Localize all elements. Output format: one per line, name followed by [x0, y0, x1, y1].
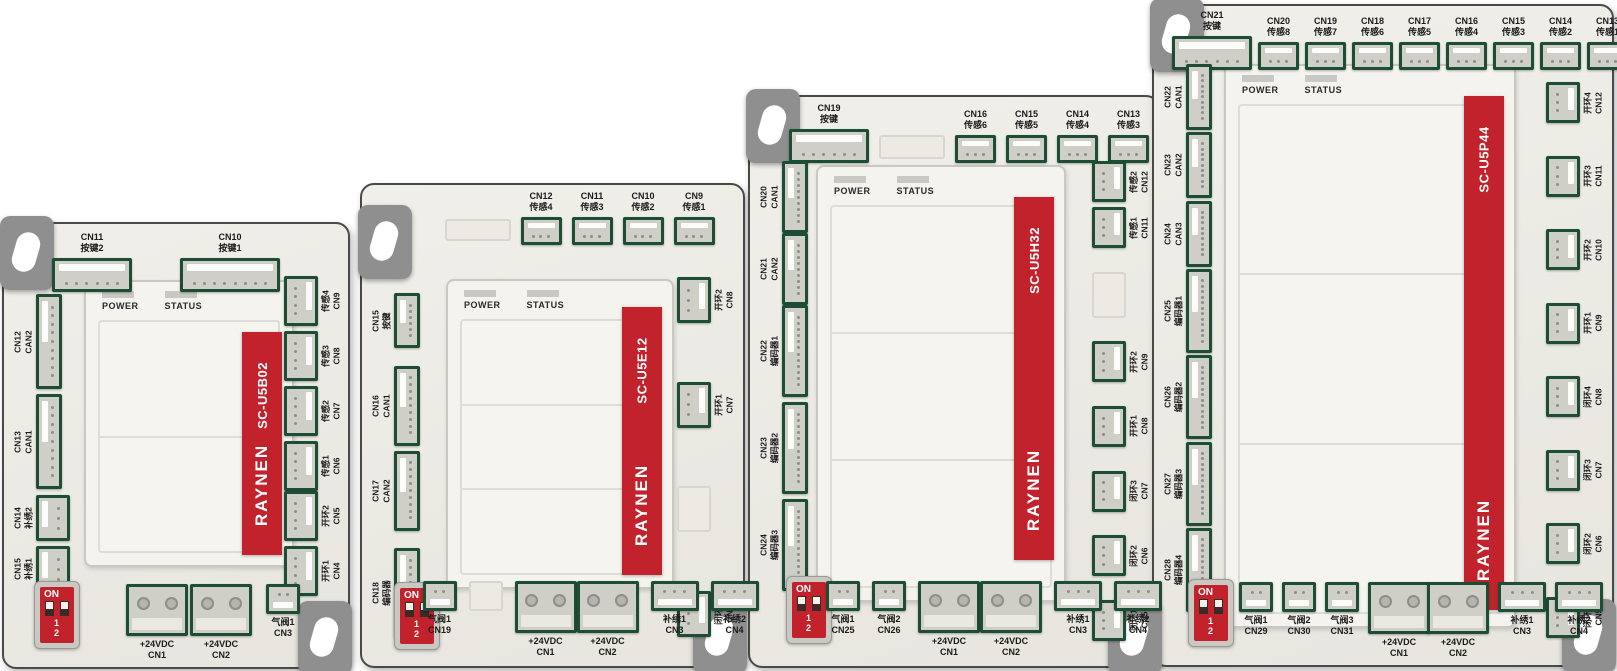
pin-dots	[797, 170, 800, 224]
pin	[1201, 399, 1204, 402]
pin-dots	[1201, 451, 1204, 517]
pin	[673, 590, 676, 593]
pin	[1033, 153, 1036, 156]
dip-knob	[1200, 600, 1207, 607]
pin	[1251, 591, 1254, 594]
pin	[409, 404, 412, 407]
top-connector-CN13: CN13传感1	[1587, 16, 1617, 70]
pin-dots	[964, 153, 987, 156]
screw	[229, 597, 242, 610]
pin	[1201, 323, 1204, 326]
pin	[409, 559, 412, 562]
connector-label-CN20: CN20传感8	[1267, 16, 1290, 39]
pin	[797, 383, 800, 386]
pin	[1201, 382, 1204, 385]
bottom-connector-CN1: +24VDCCN1	[1368, 582, 1430, 660]
pin	[1556, 183, 1559, 186]
label-line: 开环2	[713, 289, 724, 311]
connector-CN7	[677, 382, 711, 428]
blank-slot	[879, 135, 945, 159]
pin	[685, 235, 688, 238]
connector-label-CN15: CN15传感5	[1015, 109, 1038, 132]
pin	[797, 540, 800, 543]
label-line: CN15	[370, 310, 381, 332]
pin	[1201, 307, 1204, 310]
pin	[294, 460, 297, 463]
pin	[51, 466, 54, 469]
label-line: 传感5	[1015, 120, 1038, 131]
pin-dots	[530, 235, 553, 238]
dip-knob	[61, 602, 68, 609]
connector-group: CN22编码器1CN23编码器2CN24编码器3	[758, 305, 808, 591]
pin	[409, 304, 412, 307]
rotated-label: 闭环2CN6	[1128, 545, 1149, 567]
label-line: 补绣2	[723, 614, 746, 625]
connector-label-CN8: 开环1CN8	[1128, 406, 1150, 447]
pin	[797, 565, 800, 568]
pin	[797, 468, 800, 471]
connector-CN16	[955, 135, 996, 163]
pin-dots	[835, 590, 851, 593]
label-line: 传感3	[1117, 120, 1140, 131]
connector-label-CN1: +24VDCCN1	[932, 636, 966, 659]
pin	[1201, 185, 1204, 188]
model-label: SC-U5H32	[1027, 227, 1042, 294]
connector-slot	[1568, 309, 1574, 331]
top-connector-CN11: CN11按键2	[52, 232, 132, 292]
connector-CN13	[1587, 42, 1617, 70]
pin-dots	[1564, 591, 1594, 594]
connector-label-CN22: CN22CAN1	[1162, 64, 1184, 130]
top-connector-CN15: CN15传感5	[1006, 109, 1047, 163]
connector-slot	[1192, 276, 1198, 312]
bottom-connector-row: +24VDCCN1+24VDCCN2气阀1CN3	[94, 584, 332, 662]
label-line: CN19	[817, 103, 840, 114]
label-line: 气阀3	[1330, 615, 1353, 626]
label-line: CN9	[1593, 312, 1604, 334]
pin	[1285, 60, 1288, 63]
pin	[797, 474, 800, 477]
pin	[1556, 395, 1559, 398]
label-line: CN3	[1510, 626, 1533, 637]
label-line: CN2	[590, 647, 624, 658]
pin	[1102, 188, 1105, 191]
connector-label-CN9: 传感4CN9	[320, 276, 342, 326]
pin-dots	[660, 590, 690, 593]
power-led-block: POWER	[1242, 75, 1279, 95]
connector-slot	[1453, 48, 1480, 53]
connector-label-CN23: CN23编码器2	[758, 402, 780, 494]
label-line: 开环4	[1582, 92, 1593, 114]
connector-group: 闭环3CN7	[1546, 450, 1604, 491]
screw	[553, 594, 566, 607]
top-connector-CN15: CN15传感3	[1493, 16, 1534, 70]
connector-slot	[400, 458, 406, 492]
rotated-label: 开环1CN7	[713, 394, 734, 416]
mount-tab	[358, 205, 412, 279]
pin-dots	[1201, 210, 1204, 258]
connector-CN6	[1092, 535, 1126, 576]
connector-CN3	[1498, 582, 1546, 612]
pin	[1201, 544, 1204, 547]
pin	[812, 153, 815, 156]
connector-CN7	[1546, 450, 1580, 491]
label-line: CN2	[994, 647, 1028, 658]
rotated-label: 开环1CN9	[1582, 312, 1603, 334]
connector-label-CN15: CN15按键	[370, 293, 392, 348]
connector-CN13	[36, 394, 62, 489]
label-line: 编码器1	[769, 336, 780, 366]
label-line: CN31	[1330, 626, 1353, 637]
pin	[1201, 377, 1204, 380]
rotated-label: 闭环2CN6	[1582, 533, 1603, 555]
label-line: CN7	[1139, 480, 1150, 502]
connector-CN27	[1186, 442, 1212, 526]
pin	[1201, 371, 1204, 374]
connector-slot	[1332, 600, 1352, 606]
pin	[116, 282, 119, 285]
right-connector-CN6: 闭环2CN6	[1092, 535, 1150, 576]
label-line: 开环1	[1128, 416, 1139, 438]
label-line: CAN1	[23, 430, 34, 453]
terminal-screws	[921, 594, 977, 607]
pin	[663, 590, 666, 593]
connector-CN18	[1352, 42, 1393, 70]
pin-dots	[1102, 349, 1105, 374]
screw	[991, 594, 1004, 607]
connector-label-CN9: CN9传感1	[682, 191, 705, 214]
dip-knob	[813, 597, 820, 604]
pin	[723, 590, 726, 593]
pin	[1568, 591, 1571, 594]
label-line: 传感5	[1408, 27, 1431, 38]
pin	[294, 304, 297, 307]
connector-CN12	[36, 294, 62, 389]
left-connector-column: CN20CAN1CN21CAN2CN22编码器1CN23编码器2CN24编码器3	[758, 161, 808, 589]
label-line: 闭环2	[1582, 533, 1593, 555]
pin-dots	[1314, 60, 1337, 63]
pin	[838, 590, 841, 593]
dip-on-label: ON	[1194, 585, 1228, 598]
connector-slot	[1568, 235, 1574, 257]
pin	[294, 574, 297, 577]
pin	[409, 431, 412, 434]
pin	[1201, 164, 1204, 167]
label-line: 传感1	[1596, 27, 1617, 38]
label-line: 传感1	[320, 455, 331, 477]
connector-slot	[528, 223, 555, 228]
pin	[1102, 218, 1105, 221]
pin	[853, 153, 856, 156]
rotated-label: CN13CAN1	[12, 430, 33, 453]
pin	[294, 469, 297, 472]
label-line: CN30	[1287, 626, 1310, 637]
rotated-label: 开环2CN10	[1582, 239, 1603, 261]
bottom-connector-CN29: 气阀1CN29	[1239, 582, 1273, 638]
status-led	[165, 291, 197, 298]
rotated-label: 传感4CN9	[320, 290, 341, 312]
pin	[1185, 60, 1188, 63]
pin	[1102, 417, 1105, 420]
pin-dots	[1556, 237, 1559, 262]
pin	[1102, 180, 1105, 183]
label-line: CN4	[723, 625, 746, 636]
pin-dots	[294, 449, 297, 483]
label-line: 开环3	[1582, 165, 1593, 187]
connector-CN15	[394, 293, 420, 348]
label-line: CN11	[580, 191, 603, 202]
label-line: CN22	[1162, 85, 1173, 108]
connector-slot	[1061, 599, 1095, 605]
model-strip: SC-U5H32RAYNEN	[1014, 197, 1054, 560]
pin	[1102, 481, 1105, 484]
left-connector-CN20: CN20CAN1	[758, 161, 808, 233]
label-line: CN27	[1162, 469, 1173, 499]
connector-CN12	[1546, 82, 1580, 123]
status-led	[897, 176, 929, 183]
pin-dots	[1556, 164, 1559, 189]
dip-numbers: 1 2	[792, 613, 826, 633]
rotated-label: CN24编码器3	[758, 530, 779, 560]
pin	[1201, 211, 1204, 214]
dip-lever	[1214, 599, 1223, 614]
label-line: CN9	[682, 191, 705, 202]
label-line: CN28	[1162, 555, 1173, 585]
left-connector-CN14: CN14补绣2	[12, 495, 70, 541]
pin	[974, 153, 977, 156]
label-line: CN1	[528, 647, 562, 658]
connector-CN8	[284, 331, 318, 381]
left-connector-CN27: CN27编码器3	[1162, 442, 1212, 526]
label-line: CN9	[331, 290, 342, 312]
model-zone: SC-U5H32	[1014, 205, 1054, 315]
connector-CN19	[789, 129, 869, 163]
pin	[797, 443, 800, 446]
label-line: +24VDC	[1382, 637, 1416, 648]
connector-slot	[1568, 382, 1574, 404]
pin	[1201, 290, 1204, 293]
connector-label-CN10: CN10按键1	[218, 232, 241, 255]
connector-group: 开环2CN5开环1CN4	[284, 491, 342, 596]
label-line: CN20	[1267, 16, 1290, 27]
connector-slot	[788, 506, 794, 546]
pin	[802, 153, 805, 156]
label-line: 补绣2	[1567, 615, 1590, 626]
label-line: CN3	[663, 625, 686, 636]
pin	[1418, 60, 1421, 63]
pin	[797, 280, 800, 283]
pin	[1102, 360, 1105, 363]
model-label: SC-U5E12	[635, 337, 650, 403]
brand-zone: RAYNEN	[1014, 430, 1054, 550]
label-line: CN24	[1162, 222, 1173, 245]
screw	[1379, 595, 1392, 608]
label-line: CN13	[1117, 109, 1140, 120]
pin	[1201, 329, 1204, 332]
pin	[1201, 421, 1204, 424]
pin	[409, 316, 412, 319]
pin-dots	[275, 593, 291, 596]
pin	[294, 287, 297, 290]
pin	[264, 282, 267, 285]
pin-dots	[1123, 590, 1153, 593]
connector-label-CN18: CN18编码器	[370, 548, 392, 638]
pin	[1606, 60, 1609, 63]
pin	[294, 350, 297, 353]
right-connector-CN9: 传感4CN9	[284, 276, 342, 326]
pin	[409, 573, 412, 576]
connector-group: 开环3CN11	[1546, 156, 1604, 197]
pin	[1201, 410, 1204, 413]
bottom-connector-CN4: 补绣2CN4	[711, 581, 759, 637]
pin-dots	[1102, 215, 1105, 240]
power-led-label: POWER	[102, 301, 139, 311]
dip-knob	[406, 603, 413, 610]
left-connector-CN23: CN23CAN2	[1162, 132, 1212, 198]
rotated-label: 开环2CN5	[320, 505, 341, 527]
pin	[409, 334, 412, 337]
status-led-label: STATUS	[897, 186, 935, 196]
pin	[1102, 498, 1105, 501]
label-line: CN13	[12, 430, 23, 453]
mount-hole	[755, 102, 789, 147]
connector-label-CN15: CN15传感3	[1502, 16, 1525, 39]
pin	[743, 590, 746, 593]
connector-label-CN15: CN15补绣1	[12, 546, 34, 592]
pin	[797, 462, 800, 465]
pin	[409, 510, 412, 513]
power-led	[1242, 75, 1274, 82]
power-led	[464, 290, 496, 297]
label-line: CN14	[1066, 109, 1089, 120]
left-connector-CN16: CN16CAN1	[370, 366, 420, 446]
pin	[797, 553, 800, 556]
pin	[1076, 153, 1079, 156]
pin	[294, 527, 297, 530]
connector-label-CN16: CN16传感4	[1455, 16, 1478, 39]
label-line: 补绣1	[23, 558, 34, 580]
connector-slot	[788, 168, 794, 198]
pin	[1102, 563, 1105, 566]
pin	[1201, 507, 1204, 510]
pin	[1316, 60, 1319, 63]
connector-slot	[42, 501, 48, 527]
pin	[1201, 243, 1204, 246]
pin	[982, 153, 985, 156]
terminal-screws	[193, 597, 249, 610]
pin	[797, 292, 800, 295]
connector-CN1	[1368, 582, 1430, 634]
pin	[1294, 591, 1297, 594]
pin	[409, 328, 412, 331]
label-line: +24VDC	[204, 639, 238, 650]
connector-CN7	[284, 386, 318, 436]
pin-dots	[1455, 60, 1478, 63]
label-line: CN21	[1200, 10, 1223, 21]
pin	[294, 295, 297, 298]
pin	[1567, 60, 1570, 63]
terminal-screws	[983, 594, 1039, 607]
connector-CN16	[394, 366, 420, 446]
pin	[1201, 463, 1204, 466]
blank-slot	[469, 581, 503, 611]
connector-slot	[1359, 48, 1386, 53]
connector-label-CN3: 补绣1CN3	[663, 614, 686, 637]
label-line: CN8	[331, 345, 342, 367]
dip-knob	[798, 597, 805, 604]
status-leds: POWERSTATUS	[1242, 75, 1342, 95]
label-line: CN12	[1593, 92, 1604, 114]
pin	[843, 153, 846, 156]
connector-group: 开环4CN12	[1546, 82, 1604, 123]
terminal-screws	[580, 594, 636, 607]
connector-CN26	[1186, 355, 1212, 439]
label-line: CN16	[370, 394, 381, 417]
pin-dots	[1102, 479, 1105, 504]
connector-CN10	[1546, 229, 1580, 270]
pin	[1201, 426, 1204, 429]
pin	[1201, 301, 1204, 304]
pin	[1102, 352, 1105, 355]
pin	[1102, 226, 1105, 229]
label-line: 编码器	[381, 580, 392, 606]
rotated-label: CN24CAN3	[1162, 222, 1183, 245]
connector-slot	[1289, 600, 1309, 606]
rotated-label: CN18编码器	[370, 580, 391, 606]
pin	[1201, 174, 1204, 177]
pin	[278, 593, 281, 596]
label-line: 传感1	[682, 202, 705, 213]
pin	[1084, 153, 1087, 156]
connector-slot	[788, 409, 794, 449]
pin	[1201, 474, 1204, 477]
model-strip: SC-U5B02RAYNEN	[242, 332, 282, 555]
connector-label-CN17: CN17CAN2	[370, 451, 392, 531]
pin	[409, 566, 412, 569]
pin	[1077, 590, 1080, 593]
connector-CN9	[284, 276, 318, 326]
label-line: CN14	[1549, 16, 1572, 27]
label-line: CN1	[1382, 648, 1416, 659]
screw	[587, 594, 600, 607]
pin-dots	[797, 314, 800, 388]
pin	[1302, 591, 1305, 594]
pin	[1135, 153, 1138, 156]
pin	[683, 590, 686, 593]
pin	[797, 425, 800, 428]
status-led-label: STATUS	[1305, 85, 1343, 95]
connector-CN19	[423, 581, 457, 611]
pin	[1512, 60, 1515, 63]
connector-slot	[187, 264, 273, 271]
connector-CN1	[918, 581, 980, 633]
pin-dots	[1201, 278, 1204, 344]
connector-label-CN17: CN17传感5	[1408, 16, 1431, 39]
pin-dots	[1334, 591, 1350, 594]
right-connector-column: 开环4CN12开环3CN11开环2CN10开环1CN9闭环4CN8闭环3CN7闭…	[1546, 82, 1604, 638]
pin	[1201, 468, 1204, 471]
connector-slot	[59, 264, 125, 271]
connector-label-CN27: CN27编码器3	[1162, 442, 1184, 526]
pin	[641, 235, 644, 238]
connector-group: 传感2CN12传感1CN11	[1092, 161, 1150, 248]
pin	[1067, 590, 1070, 593]
connector-slot	[1114, 167, 1120, 189]
pin	[687, 403, 690, 406]
model-strip: SC-U5E12RAYNEN	[622, 307, 662, 575]
label-line: 传感3	[320, 345, 331, 367]
pin-dots	[1102, 414, 1105, 439]
